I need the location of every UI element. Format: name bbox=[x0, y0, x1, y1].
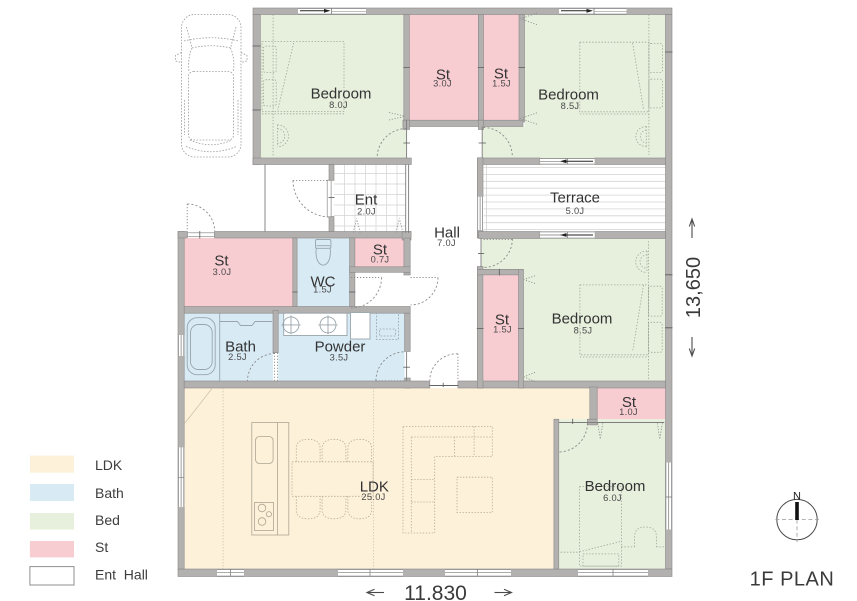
svg-text:7.0J: 7.0J bbox=[437, 238, 456, 248]
svg-text:Bath: Bath bbox=[95, 485, 124, 501]
svg-text:1.5J: 1.5J bbox=[492, 79, 511, 89]
svg-text:8.5J: 8.5J bbox=[574, 326, 593, 336]
svg-text:0.7J: 0.7J bbox=[371, 255, 390, 265]
svg-text:Terrace: Terrace bbox=[550, 190, 600, 207]
svg-text:3.0J: 3.0J bbox=[213, 267, 232, 277]
svg-text:8.5J: 8.5J bbox=[561, 101, 580, 111]
svg-text:8.0J: 8.0J bbox=[329, 100, 348, 110]
svg-text:3.5J: 3.5J bbox=[330, 353, 349, 363]
svg-text:1.5J: 1.5J bbox=[313, 285, 332, 295]
svg-text:2.0J: 2.0J bbox=[357, 207, 376, 217]
svg-text:St: St bbox=[95, 539, 108, 555]
svg-text:1F PLAN: 1F PLAN bbox=[750, 568, 835, 590]
svg-text:N: N bbox=[793, 491, 801, 503]
svg-text:6.0J: 6.0J bbox=[603, 493, 622, 503]
svg-text:3.0J: 3.0J bbox=[433, 79, 452, 89]
svg-text:1.0J: 1.0J bbox=[619, 407, 638, 417]
svg-text:LDK: LDK bbox=[95, 457, 123, 473]
svg-text:1.5J: 1.5J bbox=[493, 325, 512, 335]
svg-text:13,650: 13,650 bbox=[683, 257, 705, 318]
svg-text:25.0J: 25.0J bbox=[361, 492, 385, 502]
svg-text:Ent Hall: Ent Hall bbox=[95, 567, 148, 583]
svg-text:5.0J: 5.0J bbox=[566, 206, 585, 216]
svg-text:2.5J: 2.5J bbox=[228, 352, 247, 362]
svg-text:Bed: Bed bbox=[95, 512, 120, 528]
svg-text:11.830: 11.830 bbox=[404, 582, 467, 601]
